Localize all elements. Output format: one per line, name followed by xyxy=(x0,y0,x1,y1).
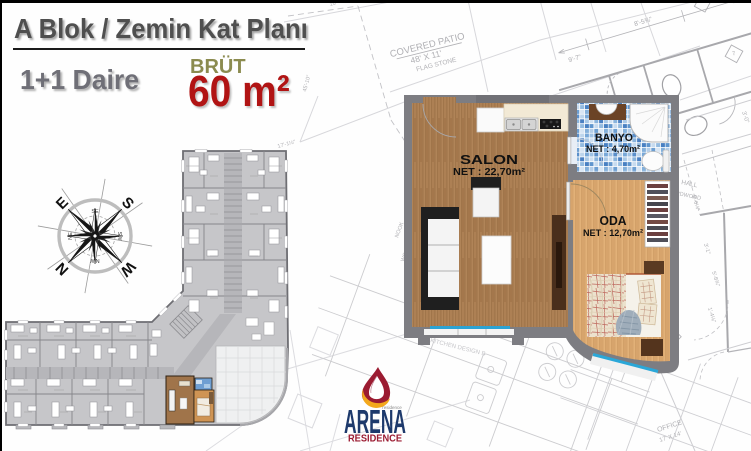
svg-text:NW: NW xyxy=(90,257,100,263)
svg-text:7: 7 xyxy=(732,51,737,58)
svg-text:45'-10": 45'-10" xyxy=(302,74,312,92)
svg-text:NET : 4,70m²: NET : 4,70m² xyxy=(586,144,640,155)
svg-text:3'-1": 3'-1" xyxy=(702,243,711,255)
svg-text:5'-8¾": 5'-8¾" xyxy=(710,271,720,288)
svg-text:SALON: SALON xyxy=(460,153,518,167)
svg-text:SE: SE xyxy=(91,209,99,215)
svg-text:8'-5¾": 8'-5¾" xyxy=(633,16,653,28)
svg-text:3'-0": 3'-0" xyxy=(740,111,749,124)
svg-text:NET : 22,70m²: NET : 22,70m² xyxy=(453,167,526,178)
svg-text:NOOK: NOOK xyxy=(394,221,405,239)
svg-text:SW: SW xyxy=(116,232,122,242)
svg-text:RESIDENCE: RESIDENCE xyxy=(348,433,402,445)
svg-text:KITCHEN DESIGN B: KITCHEN DESIGN B xyxy=(430,338,486,358)
svg-text:HALL: HALL xyxy=(681,179,699,189)
svg-text:BANYO: BANYO xyxy=(595,132,633,144)
svg-text:17'-1½": 17'-1½" xyxy=(277,138,297,150)
svg-text:9'-7": 9'-7" xyxy=(568,54,583,65)
svg-text:NE: NE xyxy=(68,232,74,240)
svg-text:ODA: ODA xyxy=(600,214,627,228)
svg-text:17' X 14': 17' X 14' xyxy=(659,431,683,444)
svg-text:1'-4⅛": 1'-4⅛" xyxy=(706,307,716,324)
svg-text:NET : 12,70m²: NET : 12,70m² xyxy=(583,228,643,239)
